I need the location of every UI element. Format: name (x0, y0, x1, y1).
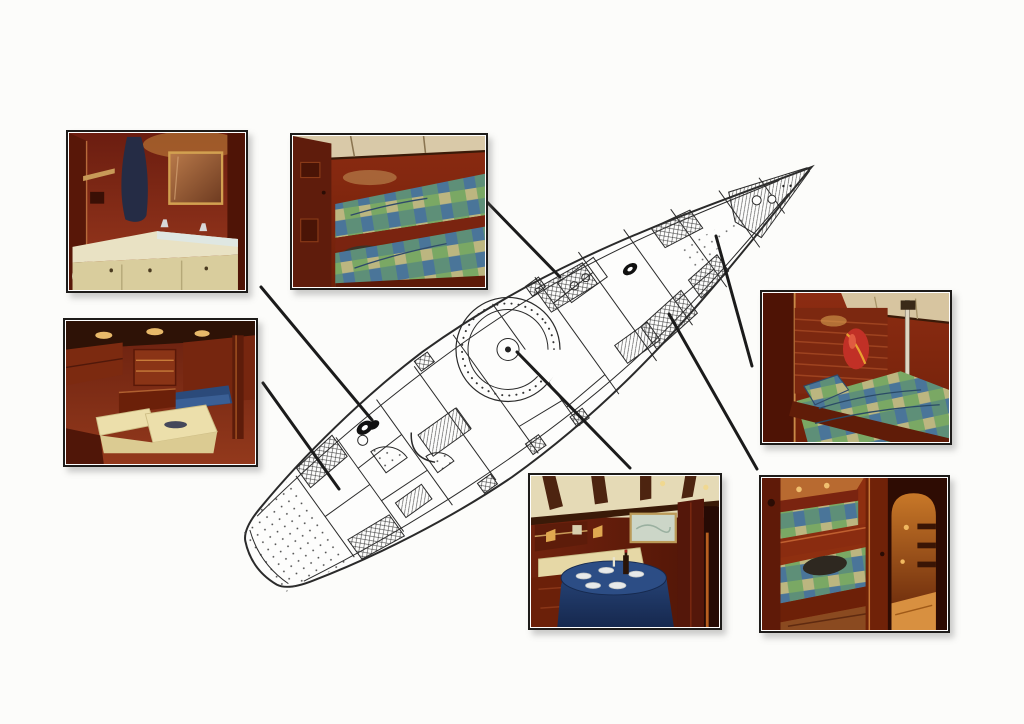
photo-dining-saloon (528, 473, 722, 630)
bathroom-photo-image (69, 133, 245, 290)
fore-cabin-photo-image (293, 136, 485, 287)
connector-photo-head (261, 287, 372, 420)
starboard-cabin-photo-image (763, 293, 949, 442)
salon-photo-image (66, 321, 255, 464)
dining-photo-image (531, 476, 719, 627)
brochure-page (0, 0, 1024, 724)
connector-photo-fore-cabin (486, 201, 560, 277)
photo-starboard-cabin-berth (760, 290, 952, 445)
guest-cabin-photo-image (762, 478, 947, 630)
photo-guest-cabin-bunks (759, 475, 950, 633)
photo-head-bathroom (66, 130, 248, 293)
photo-salon-settee (63, 318, 258, 467)
photo-fore-cabin-bunks (290, 133, 488, 290)
